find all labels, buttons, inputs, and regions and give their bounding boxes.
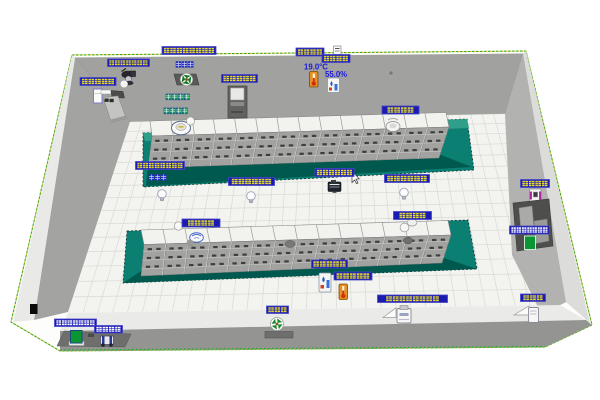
svg-text:55.0%: 55.0% [325,70,347,79]
